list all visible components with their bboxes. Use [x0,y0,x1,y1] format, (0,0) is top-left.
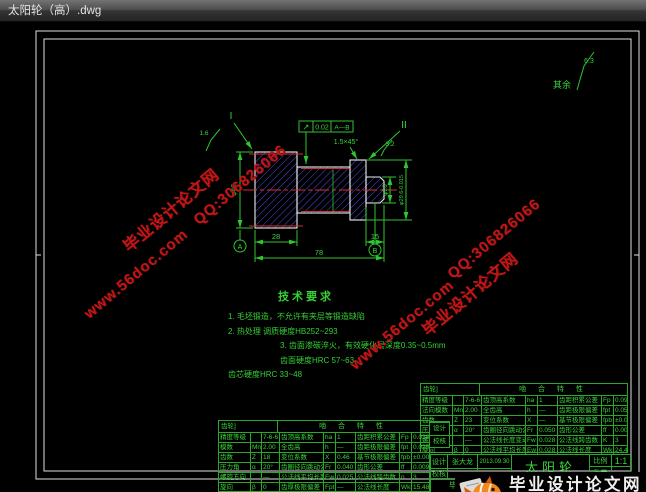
cell-label: 精度等级 [219,433,251,442]
cell-symbol: Z [453,416,464,425]
cell-symbol: h [324,443,336,452]
cell-value: 7-6-6 [262,433,280,442]
roughness-left: 1.6 [199,130,208,137]
gear-table-row: 旋向β0齿厚极限偏差Fpt—公法线长度Wkn15.48 [219,482,429,492]
cell-symbol: Fp [400,433,412,442]
dim-journal-width: 15 [371,232,379,241]
gear-table-row: 螺旋方向—公法线长度变动公差Fw0.028公法线跨齿数K3 [421,435,627,445]
cell-value: — [262,473,280,482]
gear-table-corner: 齿轮] [421,384,480,395]
cell-symbol: Mn [453,406,464,415]
tech-requirement-line: 3. 齿面渗碳淬火，有效硬化层深度0.35~0.5mm [280,339,428,354]
dim-total-width: 78 [315,248,323,257]
cell-value: — [336,443,356,452]
window-titlebar[interactable]: 太阳轮（高）.dwg [0,0,646,22]
cell-value: 0.025 [336,473,356,482]
gear-table-title: 啮 合 特 性 [278,421,429,432]
cell-value: 2.00 [262,443,280,452]
datum-a: A [238,244,243,251]
cell-value: — [538,406,558,415]
cell-symbol: Mn [251,443,262,452]
cell-value: 0.009 [614,426,627,435]
section-mark-1: I [230,111,233,122]
gear-table-row: 模数Mn2.00全齿高h—齿距极限偏差fpt0.025 [219,442,429,452]
cell-symbol: X [324,453,336,462]
cell-value: — [464,436,482,445]
app-window: 太阳轮（高）.dwg [0,0,646,492]
logo-site-name[interactable]: 毕业设计论文网 [509,476,642,492]
datum-b: B [373,248,378,255]
roughness-right: 3.2 [385,141,394,148]
tech-requirements-title: 技术要求 [278,288,428,304]
section-mark-2: II [401,120,407,131]
cell-label: 齿形公差 [356,463,400,472]
gear-table-row: 压力角α20°齿圈径向跳动公差Fr0.040齿形公差ff0.009 [219,462,429,472]
cell-symbol: fpb [602,416,614,425]
cell-label: 压力角 [219,463,251,472]
runout-symbol-icon: ↗ [303,123,310,132]
cell-label: 法向模数 [421,406,453,415]
cell-symbol: h [526,406,538,415]
cell-value: 1 [336,433,356,442]
cell-value: 0.009 [412,463,429,472]
cell-value: 0.038 [412,433,429,442]
cell-symbol: K [602,436,614,445]
cell-symbol: Wkn [400,483,412,492]
cell-symbol: Fp [602,396,614,405]
cell-label: 全齿高 [280,443,324,452]
cell-label: 齿数 [219,453,251,462]
titleblock-design-label: 设计 [430,454,448,469]
cell-value: 20° [464,426,482,435]
cell-value: — [538,416,558,425]
titleblock-designer: 张大龙 [447,454,478,469]
signature-label: 校核 [430,435,449,448]
cell-value: 18 [262,453,280,462]
cell-value: ±0.005 [412,453,429,462]
cell-value: 3 [614,436,627,445]
cad-viewport[interactable]: 28 15 78 φ46 φ26 φ29.6-0.015 I II 1.6 3.… [0,22,646,492]
cell-label: 变位系数 [280,453,324,462]
gear-table-row: 压力角α20°齿圈径向跳动公差Fr0.050齿形公差ff0.009 [421,425,627,435]
gear-table-row: 精度等级7-6-6齿顶高系数ha1齿距积累公差Fp0.038 [219,432,429,442]
signature-column: 设计校核 [429,421,450,448]
cell-symbol: X [526,416,538,425]
cell-symbol: α [251,463,262,472]
cell-symbol: Z [251,453,262,462]
gear-table-row: 法向模数Mn2.00全齿高h—齿距极限偏差fpt0.050 [421,405,627,415]
cell-value: 0.050 [538,426,558,435]
cell-symbol [453,396,464,405]
cell-value: 0 [262,483,280,492]
cell-value: 15.48 [412,483,429,492]
cell-symbol: ha [324,433,336,442]
gear-table-upper: 齿轮] 啮 合 特 性 精度等级7-6-6齿顶高系数ha1齿距积累公差Fp0.0… [420,383,628,453]
cell-symbol: Fr [324,463,336,472]
cell-symbol: Fpt [324,483,336,492]
rest-roughness-label: 其余 [553,79,571,90]
cell-symbol: Fr [526,426,538,435]
dim-journal-dia: φ26 [382,184,389,196]
cell-label: 全齿高 [482,406,526,415]
rest-roughness-value: 6.3 [584,58,594,65]
dim-gear-width: 28 [272,232,280,241]
gear-table-corner: 齿轮] [219,421,278,432]
cell-symbol: β [251,483,262,492]
titleblock-date: 2013.09.30 [477,454,512,469]
cell-label: 基节极限偏差 [356,453,400,462]
cell-symbol: ff [602,426,614,435]
cell-value: 20° [262,463,280,472]
fish-logo-icon [459,473,505,492]
cell-label: 公法线长度 [356,483,400,492]
cell-value: — [336,483,356,492]
gear-table-title: 啮 合 特 性 [480,384,627,395]
cell-label: 公法线平均长度偏差 [280,473,324,482]
window-title: 太阳轮（高）.dwg [8,5,101,17]
dim-rim-dia: φ29.6-0.015 [399,175,405,205]
gear-table-row: 齿数Z23变位系数X—基节极限偏差fpb±0.005 [421,415,627,425]
cell-label: 齿顶高系数 [482,396,526,405]
tech-requirement-line: 齿芯硬度HRC 33~48 [228,368,428,383]
signature-label: 设计 [430,422,449,435]
cell-value: 0.090 [614,396,627,405]
cell-value: 3 [412,473,429,482]
cell-label: 旋向 [219,483,251,492]
cell-label: 齿距极限偏差 [356,443,400,452]
cell-label: 公法线长度变动公差 [482,436,526,445]
cell-value: 2.00 [464,406,482,415]
cell-symbol: fpb [400,453,412,462]
cell-symbol: Ew [324,473,336,482]
cell-symbol [453,436,464,445]
chamfer-note: 1.5×45° [334,138,359,146]
cell-label: 齿圈径向跳动公差 [482,426,526,435]
cell-symbol [251,473,262,482]
cell-label: 变位系数 [482,416,526,425]
site-logo[interactable]: 毕业设计论文网 www.56doc.com [455,472,646,492]
cell-label: 齿厚极限偏差 [280,483,324,492]
cell-value: 0.025 [412,443,429,452]
cell-label: 螺旋方向 [219,473,251,482]
gear-table-row: 精度等级7-6-6齿顶高系数ha1齿距积累公差Fp0.090 [421,395,627,405]
cell-value: 0.46 [336,453,356,462]
cell-label: 齿形公差 [558,426,602,435]
gear-table-lower: 齿轮] 啮 合 特 性 精度等级7-6-6齿顶高系数ha1齿距积累公差Fp0.0… [218,420,430,492]
runout-value: 0.02 [315,125,329,132]
cell-symbol: fpt [400,443,412,452]
cell-symbol: n [400,473,412,482]
cell-value: 23 [464,416,482,425]
cell-label: 公法线跨齿数 [356,473,400,482]
cell-symbol [251,433,262,442]
runout-datum: A—B [334,125,349,132]
cell-value: 0.050 [614,406,627,415]
cell-value: ±0.005 [614,416,627,425]
cell-value: 0.040 [336,463,356,472]
cell-label: 齿距极限偏差 [558,406,602,415]
cell-label: 齿距积累公差 [356,433,400,442]
cell-symbol: ha [526,396,538,405]
cell-label: 齿圈径向跳动公差 [280,463,324,472]
cell-label: 公法线跨齿数 [558,436,602,445]
cell-symbol: ff [400,463,412,472]
cell-value: 7-6-6 [464,396,482,405]
cell-label: 精度等级 [421,396,453,405]
cell-label: 齿顶高系数 [280,433,324,442]
cell-label: 模数 [219,443,251,452]
cell-symbol: α [453,426,464,435]
gear-table-row: 齿数Z18变位系数X0.46基节极限偏差fpb±0.005 [219,452,429,462]
cell-label: 基节极限偏差 [558,416,602,425]
gear-table-row: 螺旋方向—公法线平均长度偏差Ew0.025公法线跨齿数n3 [219,472,429,482]
cell-value: 1 [538,396,558,405]
cell-value: 0.028 [538,436,558,445]
cell-symbol: Fw [526,436,538,445]
cell-label: 齿距积累公差 [558,396,602,405]
cell-symbol: fpt [602,406,614,415]
